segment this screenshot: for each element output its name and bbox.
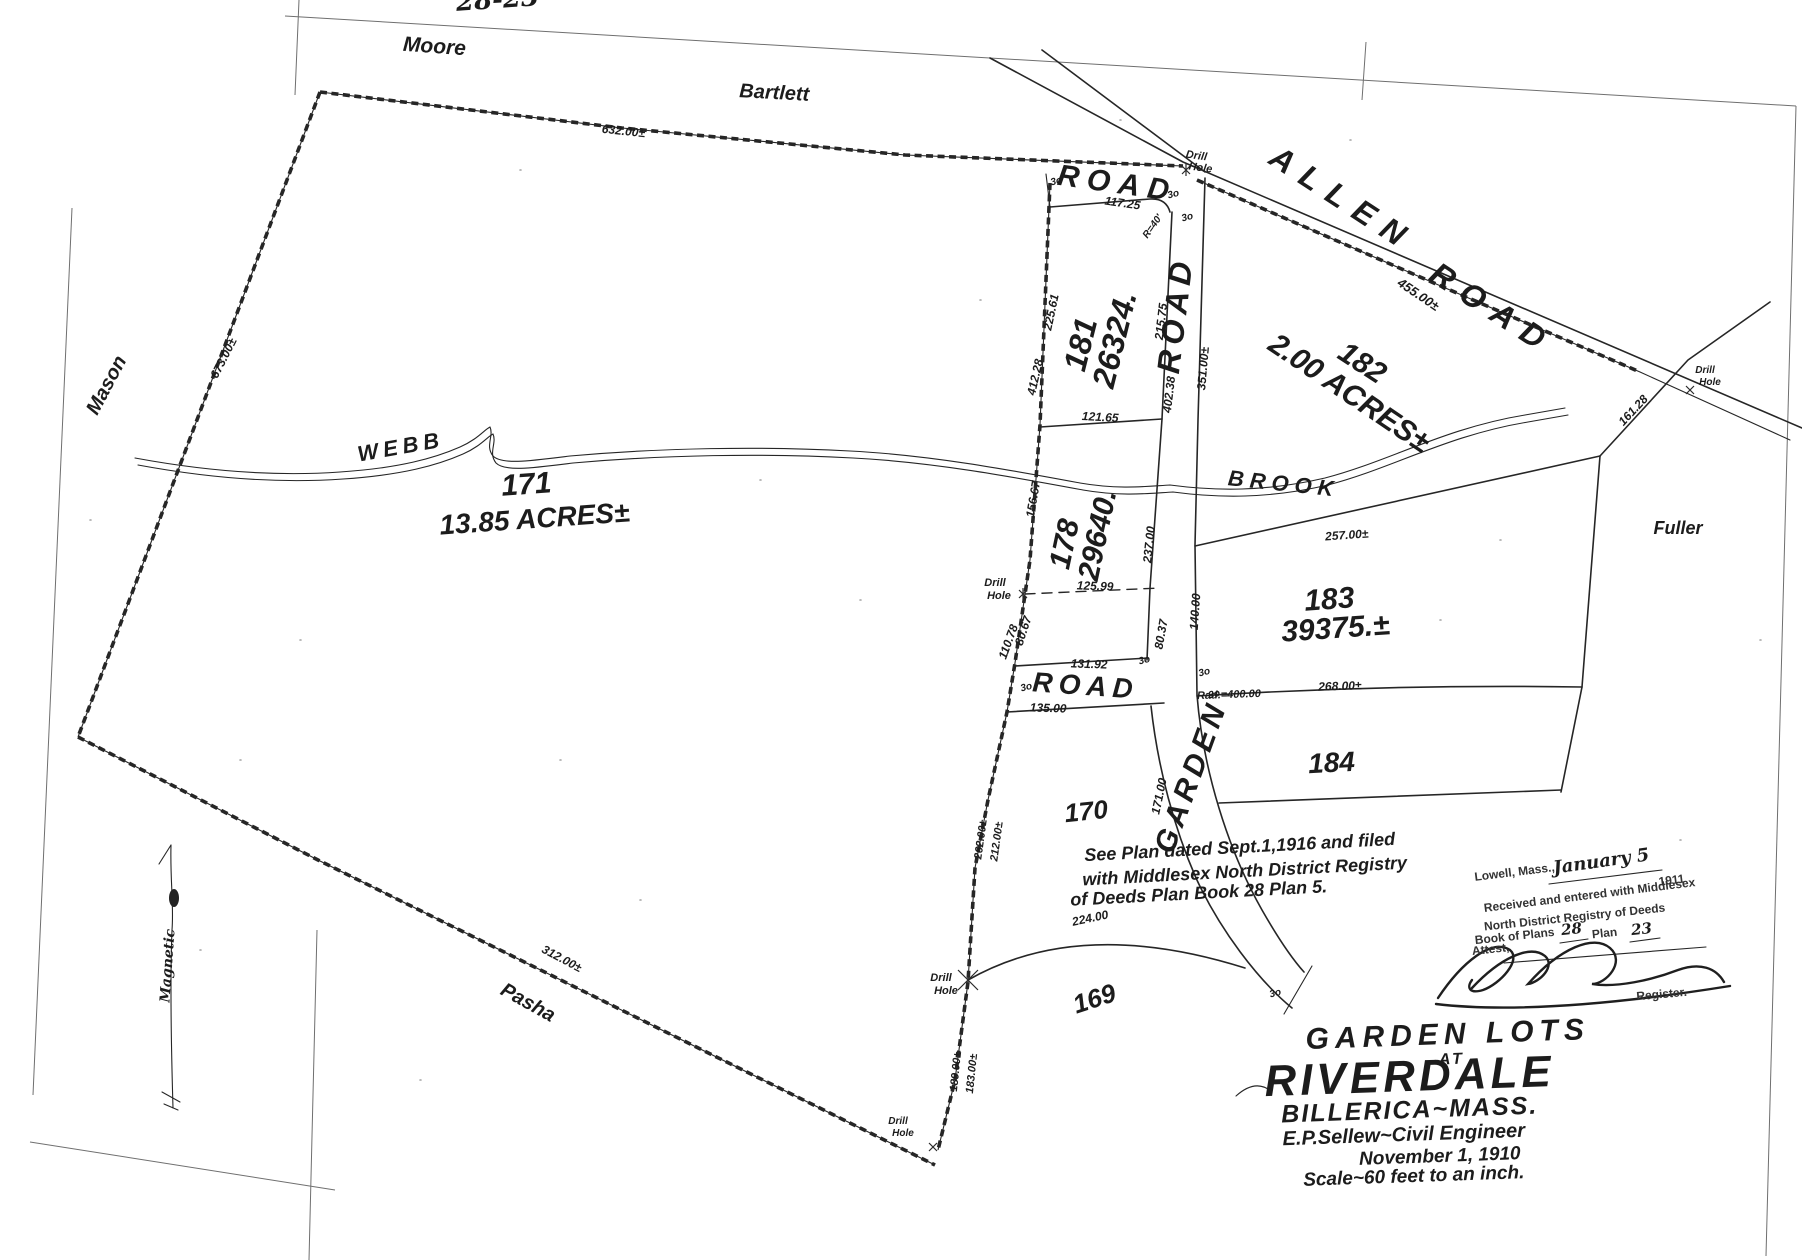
stamp-plan-number: 23 (1629, 919, 1653, 939)
stamp-book-number: 28 (1559, 919, 1583, 939)
drill-hole-3-line2: Hole (934, 985, 958, 997)
drill-hole-5-line1: Drill (888, 1116, 908, 1127)
abutter-bartlett: Bartlett (739, 80, 811, 106)
lot-171-number: 171 (500, 466, 552, 502)
dim-140: 140.00 (1187, 593, 1204, 631)
dim-121-65: 121.65 (1082, 409, 1120, 425)
lot-170-number: 170 (1063, 794, 1110, 828)
drill-hole-4-line2: Hole (1699, 377, 1721, 388)
drill-hole-2-line1: Drill (984, 577, 1006, 589)
drill-hole-4-line1: Drill (1695, 365, 1715, 376)
dim-131-92: 131.92 (1071, 656, 1108, 671)
drill-hole-5-line2: Hole (892, 1128, 914, 1139)
dim-135: 135.00 (1030, 700, 1067, 715)
drill-hole-2-line2: Hole (987, 590, 1011, 602)
dim-125-99: 125.99 (1077, 578, 1114, 593)
drill-hole-3-line1: Drill (930, 972, 952, 984)
abutter-moore: Moore (402, 33, 467, 60)
dim-268: 268.00± (1317, 678, 1362, 694)
stamp-plan-label: Plan (1591, 925, 1618, 942)
scanned-plat-sheet: 28-23ROADALLENROADROADGARDENROADMooreBar… (0, 0, 1802, 1260)
lot-184-number: 184 (1307, 746, 1356, 779)
abutter-fuller: Fuller (1653, 518, 1703, 538)
north-arrow-blob (169, 889, 179, 907)
